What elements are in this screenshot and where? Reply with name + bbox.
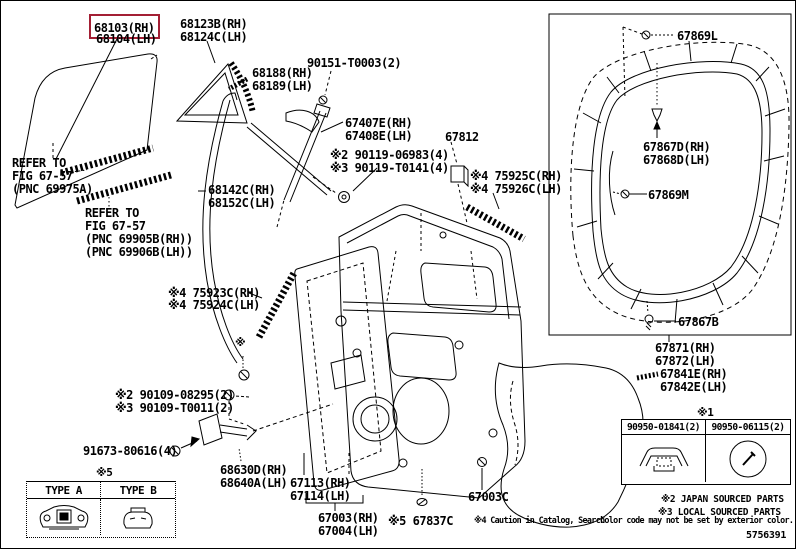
trim-panel-art: [295, 247, 399, 511]
part-label-91673[interactable]: 91673-80616(4): [83, 445, 177, 457]
part-label-68104[interactable]: 68104(LH): [96, 33, 157, 45]
weatherstrip-figure-art: [549, 14, 791, 342]
part-label-67004[interactable]: 67004(LH): [318, 525, 379, 537]
part-label-67869M[interactable]: 67869M: [648, 189, 688, 201]
part-label-90109-T0011[interactable]: ※3 90109-T0011(2): [115, 402, 234, 414]
part-label-75925C[interactable]: ※4 75925C(RH): [470, 170, 562, 182]
door-panel-art: [339, 205, 525, 498]
part-label-67871[interactable]: 67871(RH): [655, 342, 716, 354]
grommet-plug-icon: [637, 444, 691, 474]
type-b-cell: [101, 499, 175, 535]
grommet-b-header[interactable]: 90950-06115(2): [706, 420, 790, 435]
part-label-67003C[interactable]: 67003C: [468, 491, 508, 503]
clip-67812-art: [451, 142, 468, 223]
part-label-68640A[interactable]: 68640A(LH): [220, 477, 287, 489]
figure-code: 5756391: [746, 530, 786, 541]
part-label-67408E[interactable]: 67408E(LH): [345, 130, 412, 142]
grommet-table: 90950-01841(2) 90950-06115(2): [621, 419, 791, 485]
refer-note-1-line2: FIG 67-57: [12, 170, 73, 182]
grommet-round-icon-cell: [706, 435, 790, 482]
grommet-table-title: ※1: [697, 407, 713, 419]
part-label-75926C[interactable]: ※4 75926C(LH): [470, 183, 562, 195]
part-label-67113[interactable]: 67113(RH): [290, 477, 351, 489]
note-japan-sourced: ※2 JAPAN SOURCED PARTS: [661, 495, 784, 505]
part-label-67407E[interactable]: 67407E(RH): [345, 117, 412, 129]
grommet-round-icon: [726, 438, 770, 480]
part-label-67842E[interactable]: 67842E(LH): [660, 381, 727, 393]
refer-note-2-line4: (PNC 69906B(LH)): [85, 246, 193, 258]
type-a-header: TYPE A: [27, 482, 101, 499]
refer-note-2-line3: (PNC 69905B(RH)): [85, 233, 193, 245]
part-label-67114[interactable]: 67114(LH): [290, 490, 351, 502]
part-label-67841E[interactable]: 67841E(RH): [660, 368, 727, 380]
refer-note-1-line3: (PNC 69975A): [12, 183, 93, 195]
part-label-90109-08295[interactable]: ※2 90109-08295(2): [115, 389, 234, 401]
refer-note-1-line1: REFER TO: [12, 157, 66, 169]
grommet-a-header[interactable]: 90950-01841(2): [622, 420, 706, 435]
note-caution: ※4 Caution in Catalog, Search: [474, 516, 604, 525]
part-label-68123B[interactable]: 68123B(RH): [180, 18, 247, 30]
part-label-67837C[interactable]: ※5 67837C: [388, 515, 453, 527]
part-label-67868D[interactable]: 67868D(LH): [643, 154, 710, 166]
part-label-67867D[interactable]: 67867D(RH): [643, 141, 710, 153]
door-check-type-a-icon: [35, 502, 93, 532]
tape-rear-art: [467, 193, 524, 239]
door-check-type-b-icon: [116, 503, 160, 531]
type-a-cell: [27, 499, 101, 535]
part-label-68188[interactable]: 68188(RH): [252, 67, 313, 79]
note-color-code: Color code may not be set by exterior co…: [600, 516, 793, 525]
type-b-header: TYPE B: [101, 482, 175, 499]
part-label-67872[interactable]: 67872(LH): [655, 355, 716, 367]
part-label-68152C[interactable]: 68152C(LH): [208, 197, 275, 209]
clip-67837c-art: [417, 469, 427, 506]
part-label-67003[interactable]: 67003(RH): [318, 512, 379, 524]
part-label-68124C[interactable]: 68124C(LH): [180, 31, 247, 43]
part-label-75924C[interactable]: ※4 75924C(LH): [168, 299, 260, 311]
part-label-90119-T0141[interactable]: ※3 90119-T0141(4): [330, 162, 449, 174]
part-label-68142C[interactable]: 68142C(RH): [208, 184, 275, 196]
door-check-table-title: ※5: [96, 467, 112, 479]
grommet-67003c-art: [478, 458, 487, 491]
part-label-67812[interactable]: 67812: [445, 131, 479, 143]
part-label-90151-T0003[interactable]: 90151-T0003(2): [307, 57, 401, 69]
glass-run-art: [198, 93, 243, 363]
asterisk-mark: ※: [235, 337, 245, 349]
parts-diagram-page: 68103(RH) 68104(LH) 68123B(RH) 68124C(LH…: [0, 0, 796, 549]
grommet-a-cell: [622, 435, 706, 482]
part-label-67867B[interactable]: 67867B: [678, 316, 718, 328]
door-check-type-table: TYPE A TYPE B: [26, 481, 176, 538]
part-label-90119-06983[interactable]: ※2 90119-06983(4): [330, 149, 449, 161]
part-label-68189[interactable]: 68189(LH): [252, 80, 313, 92]
part-label-68630D[interactable]: 68630D(RH): [220, 464, 287, 476]
refer-note-2-line1: REFER TO: [85, 207, 139, 219]
part-label-67869L[interactable]: 67869L: [677, 30, 717, 42]
refer-note-2-line2: FIG 67-57: [85, 220, 146, 232]
